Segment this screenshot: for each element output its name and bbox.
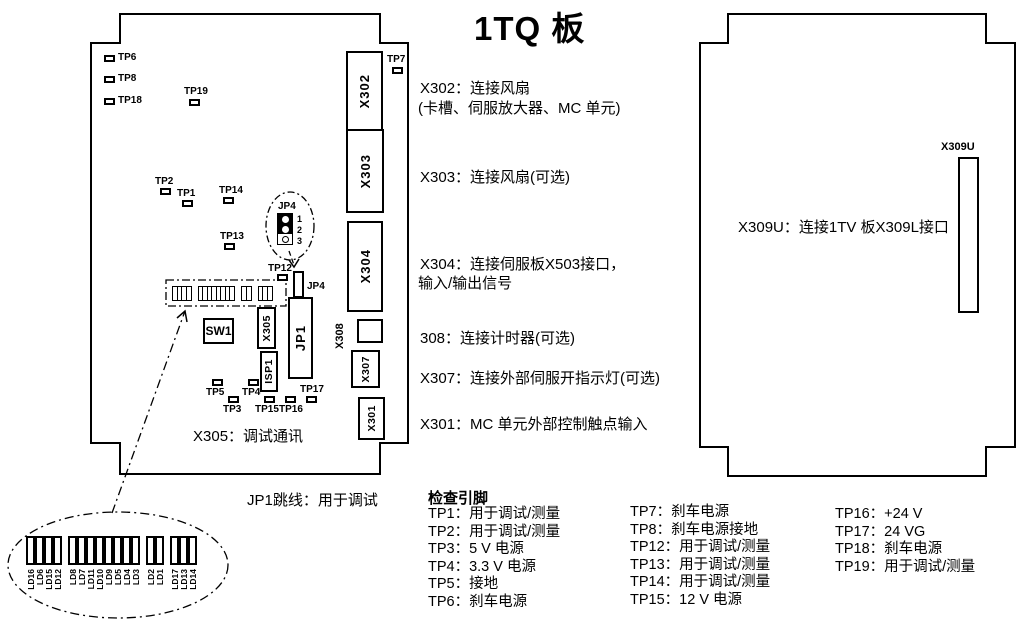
jumper-jp1: JP1: [288, 297, 313, 379]
tp13-pad: [224, 243, 235, 250]
led-bank: [172, 286, 273, 301]
tp2-label: TP2: [155, 176, 173, 187]
tp5-pad: [212, 379, 223, 386]
annotation-x308: 308：连接计时器(可选): [420, 327, 575, 348]
pcb-diagram: 1TQ 板 X302 X303 X304 X308 X307 X301 SW1 …: [0, 0, 1025, 626]
led-bank-group: [172, 286, 192, 301]
check-pin-line: TP6：刹车电源: [428, 594, 560, 612]
check-pin-line: TP17：24 VG: [835, 524, 975, 542]
jp4-pin1: [278, 214, 292, 224]
check-pin-line: TP19：用于调试/测量: [835, 559, 975, 577]
led-detail: LD16 LD6 LD15 LD12 LD8 LD7 LD11 LD10 LD9…: [26, 536, 197, 590]
tp7-pad: [392, 67, 403, 74]
tp12-pad: [277, 274, 288, 281]
jp4-pin3: [278, 234, 292, 244]
led-cell: [104, 536, 113, 565]
x305-caption: X305：调试通讯: [193, 425, 303, 446]
check-pin-line: TP2：用于调试/测量: [428, 524, 560, 542]
tp19-label: TP19: [184, 86, 208, 97]
led-cell: [53, 536, 62, 565]
connector-x305: X305: [257, 307, 276, 349]
tp18-label: TP18: [118, 95, 142, 106]
tp19-pad: [189, 99, 200, 106]
led-cell: [146, 536, 155, 565]
tp7-label: TP7: [387, 54, 405, 65]
check-pins-col1: TP1：用于调试/测量 TP2：用于调试/测量 TP3：5 V 电源 TP4：3…: [428, 506, 560, 612]
check-pin-line: TP8：刹车电源接地: [630, 522, 770, 540]
tp12-label: TP12: [268, 263, 292, 274]
check-pin-line: TP7：刹车电源: [630, 504, 770, 522]
check-pin-line: TP4：3.3 V 电源: [428, 559, 560, 577]
tp4-label: TP4: [242, 387, 260, 398]
led-cell: [68, 536, 77, 565]
tp16-pad: [285, 396, 296, 403]
led-label: LD6: [35, 569, 45, 585]
annotation-x302: X302：连接风扇: [420, 77, 530, 98]
tp6-label: TP6: [118, 52, 136, 63]
connector-x309u: [958, 157, 979, 313]
led-label: LD17: [170, 569, 180, 590]
tp3-pad: [228, 396, 239, 403]
jp4-pin2-number: 2: [297, 225, 302, 235]
connector-isp1-label: ISP1: [263, 359, 275, 384]
led-cell: [113, 536, 122, 565]
connector-x301-label: X301: [366, 405, 378, 432]
led-label: LD10: [95, 569, 105, 590]
switch-sw1-label: SW1: [205, 324, 231, 338]
tp15-pad: [264, 396, 275, 403]
tp3-label: TP3: [223, 404, 241, 415]
jumper-jp1-label: JP1: [293, 325, 308, 351]
page-title: 1TQ 板: [474, 2, 585, 50]
check-pin-line: TP15：12 V 电源: [630, 592, 770, 610]
led-cell: [86, 536, 95, 565]
connector-x304-label: X304: [358, 249, 373, 283]
connector-x303-label: X303: [358, 154, 373, 188]
led-cell: [155, 536, 164, 565]
led-cell: [35, 536, 44, 565]
connector-x302-label: X302: [357, 74, 372, 108]
led-bank-group: [198, 286, 236, 301]
led-bank-group: [241, 286, 252, 301]
check-pin-line: TP1：用于调试/测量: [428, 506, 560, 524]
connector-x305-label: X305: [261, 315, 273, 342]
tp8-label: TP8: [118, 73, 136, 84]
led-cell: [95, 536, 104, 565]
connector-x308-label: X308: [334, 315, 346, 349]
check-pin-line: TP3：5 V 电源: [428, 541, 560, 559]
led-label: LD11: [86, 569, 96, 589]
led-detail-group1: LD16 LD6 LD15 LD12: [26, 536, 62, 590]
led-label: LD16: [26, 569, 36, 590]
led-label: LD15: [44, 569, 54, 590]
check-pin-line: TP18：刹车电源: [835, 541, 975, 559]
switch-sw1: SW1: [203, 318, 234, 344]
jumper-jp4-component-label: JP4: [307, 281, 325, 292]
jumper-jp4-component: [293, 271, 304, 298]
led-detail-group3: LD2 LD1: [146, 536, 164, 590]
connector-x308: [357, 319, 383, 343]
tp5-label: TP5: [206, 387, 224, 398]
tp1-label: TP1: [177, 188, 195, 199]
connector-x304: X304: [347, 221, 383, 312]
led-label: LD3: [131, 569, 141, 585]
jp4-pin2: [278, 224, 292, 234]
led-bank-group: [258, 286, 273, 301]
jp1-note: JP1跳线：用于调试: [247, 489, 378, 510]
led-label: LD14: [188, 569, 198, 590]
tp17-pad: [306, 396, 317, 403]
check-pin-line: TP12：用于调试/测量: [630, 539, 770, 557]
tp1-pad: [182, 200, 193, 207]
led-cell: [188, 536, 197, 565]
jp4-pin3-number: 3: [297, 236, 302, 246]
led-detail-group4: LD17 LD13 LD14: [170, 536, 197, 590]
annotation-x301: X301：MC 单元外部控制触点输入: [420, 413, 648, 434]
annotation-x304: X304：连接伺服板X503接口，: [420, 253, 625, 274]
tp15-label: TP15: [255, 404, 279, 415]
check-pin-line: TP13：用于调试/测量: [630, 557, 770, 575]
led-label: LD12: [53, 569, 63, 590]
connector-x303: X303: [346, 129, 384, 213]
led-cell: [179, 536, 188, 565]
jp4-detail-label: JP4: [278, 201, 296, 212]
led-cell: [26, 536, 35, 565]
led-cell: [44, 536, 53, 565]
connector-isp1: ISP1: [260, 351, 278, 392]
led-label: LD2: [146, 569, 156, 585]
annotation-x303: X303：连接风扇(可选): [420, 166, 570, 187]
connector-x302: X302: [346, 51, 383, 131]
tp2-pad: [160, 188, 171, 195]
led-cell: [131, 536, 140, 565]
led-detail-group2: LD8 LD7 LD11 LD10 LD9 LD5 LD4 LD3: [68, 536, 140, 590]
connector-x309u-label: X309U: [941, 141, 975, 153]
led-label: LD7: [77, 569, 87, 585]
x309u-caption: X309U：连接1TV 板X309L接口: [738, 216, 949, 237]
check-pin-line: TP16：+24 V: [835, 506, 975, 524]
led-label: LD5: [113, 569, 123, 585]
led-label: LD13: [179, 569, 189, 590]
check-pins-col3: TP16：+24 V TP17：24 VG TP18：刹车电源 TP19：用于调…: [835, 506, 975, 576]
annotation-x304-detail: 输入/输出信号: [418, 272, 512, 293]
jp4-detail-block: [277, 213, 293, 245]
check-pins-header: 检查引脚: [428, 487, 488, 508]
led-label: LD1: [155, 569, 165, 585]
connector-x307-label: X307: [360, 356, 372, 383]
led-label: LD4: [122, 569, 132, 585]
tp18-pad: [104, 98, 115, 105]
tp14-pad: [223, 197, 234, 204]
led-label: LD9: [104, 569, 114, 585]
tp6-pad: [104, 55, 115, 62]
check-pins-col2: TP7：刹车电源 TP8：刹车电源接地 TP12：用于调试/测量 TP13：用于…: [630, 504, 770, 610]
led-cell: [122, 536, 131, 565]
connector-x301: X301: [358, 397, 385, 440]
led-cell: [170, 536, 179, 565]
tp13-label: TP13: [220, 231, 244, 242]
tp17-label: TP17: [300, 384, 324, 395]
annotation-x307: X307：连接外部伺服开指示灯(可选): [420, 367, 660, 388]
connector-x307: X307: [351, 350, 380, 388]
tp16-label: TP16: [279, 404, 303, 415]
tp14-label: TP14: [219, 185, 243, 196]
check-pin-line: TP5：接地: [428, 576, 560, 594]
jp4-pin1-number: 1: [297, 214, 302, 224]
led-label: LD8: [68, 569, 78, 585]
annotation-x302-detail: (卡槽、伺服放大器、MC 单元): [418, 97, 621, 118]
check-pin-line: TP14：用于调试/测量: [630, 574, 770, 592]
led-cell: [77, 536, 86, 565]
tp8-pad: [104, 76, 115, 83]
tp4-pad: [248, 379, 259, 386]
